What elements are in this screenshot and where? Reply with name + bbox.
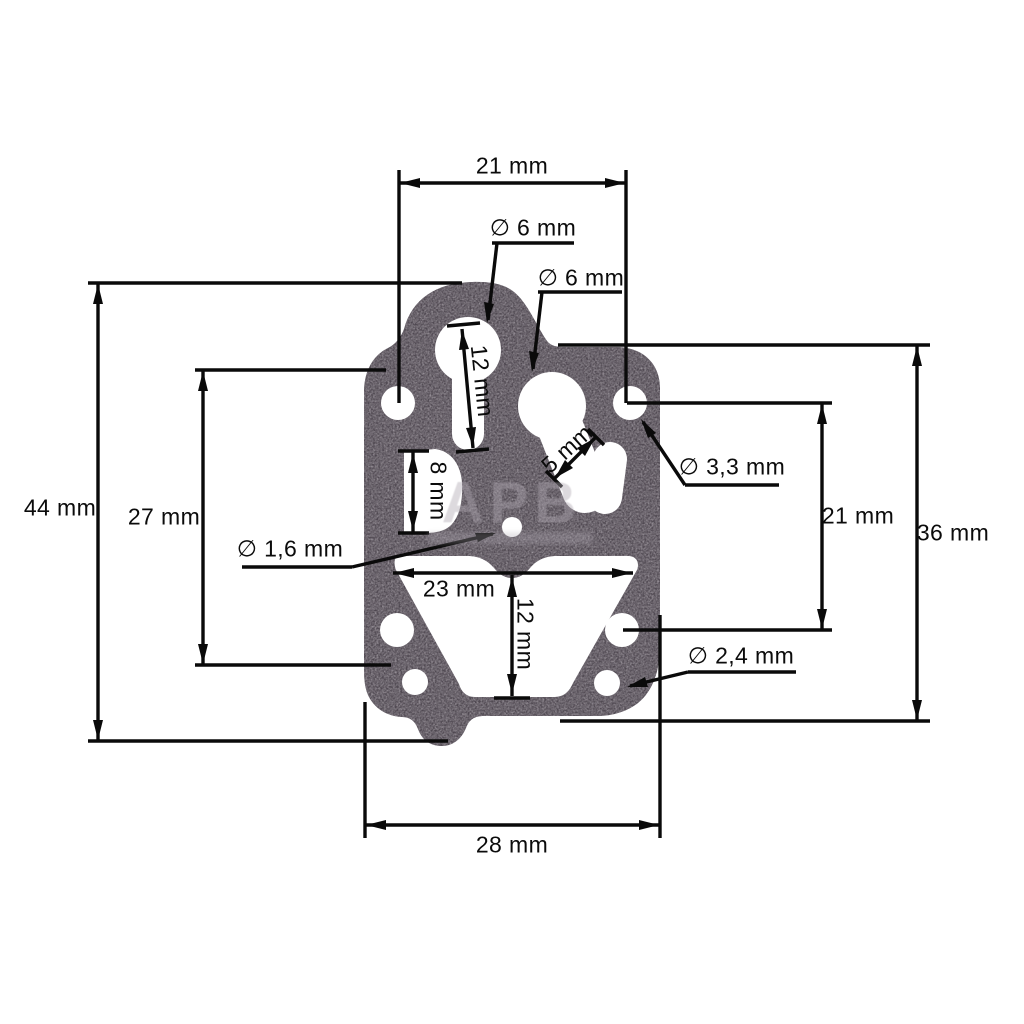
dim-label-left-span: 27 mm [128, 506, 200, 529]
watermark: APB [442, 470, 582, 537]
dim-label-cutout-height: 12 mm [514, 598, 537, 670]
kidney-slot [605, 459, 610, 497]
dia-label-mid-hole: ∅ 6 mm [538, 267, 624, 290]
dia-label-pin-hole: ∅ 1,6 mm [237, 538, 343, 561]
dim-label-overall-height: 44 mm [24, 497, 96, 520]
dim-label-right-hole-span: 21 mm [822, 505, 894, 528]
dim-label-d-hole: 8 mm [427, 461, 450, 520]
dia-label-screw-hole: ∅ 3,3 mm [679, 456, 785, 479]
dia-label-top-hole: ∅ 6 mm [490, 217, 576, 240]
watermark-subtext [428, 532, 593, 544]
dim-label-keyhole-slot: 12 mm [467, 344, 497, 418]
bolt-hole-lower-left-upper [380, 613, 414, 647]
bolt-hole-lower-right-lower [594, 670, 620, 696]
gasket-dimension-diagram: APB 21 mm ∅ 6 mm ∅ 6 mm 44 mm 27 mm 12 m… [0, 0, 1024, 1024]
dia-label-bottom-hole: ∅ 2,4 mm [688, 645, 794, 668]
dim-label-top-width: 21 mm [476, 155, 548, 178]
dim-label-cutout-width: 23 mm [423, 578, 495, 601]
bolt-hole-lower-left-lower [402, 669, 428, 695]
dim-label-bottom-width: 28 mm [476, 834, 548, 857]
dim-label-right-height: 36 mm [917, 522, 989, 545]
